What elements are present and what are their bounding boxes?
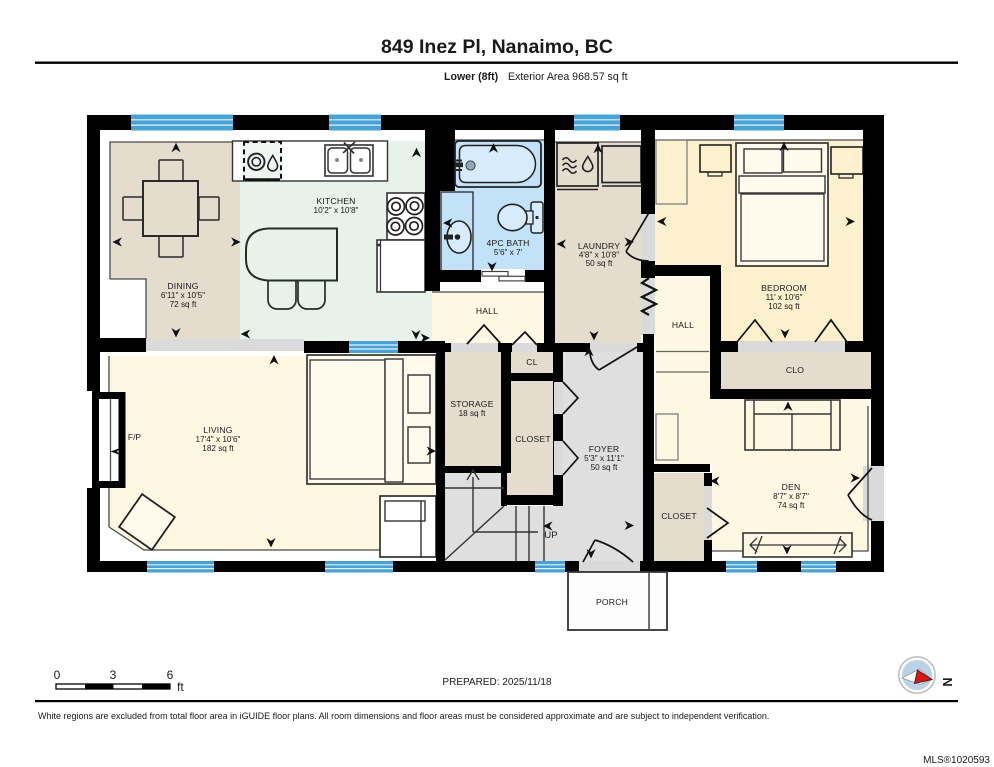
- svg-text:102 sq ft: 102 sq ft: [768, 302, 800, 311]
- svg-text:BEDROOM: BEDROOM: [761, 283, 807, 293]
- svg-text:KITCHEN: KITCHEN: [316, 196, 355, 206]
- svg-text:HALL: HALL: [476, 306, 498, 316]
- svg-text:6: 6: [167, 668, 174, 682]
- svg-text:5'3" x 11'1": 5'3" x 11'1": [584, 454, 624, 463]
- svg-text:ft: ft: [177, 680, 184, 694]
- svg-text:18 sq ft: 18 sq ft: [459, 409, 487, 418]
- svg-text:STORAGE: STORAGE: [450, 399, 493, 409]
- svg-text:FOYER: FOYER: [589, 444, 620, 454]
- svg-text:CLO: CLO: [786, 365, 804, 375]
- svg-text:PORCH: PORCH: [596, 597, 628, 607]
- svg-text:CLOSET: CLOSET: [515, 434, 551, 444]
- svg-text:DEN: DEN: [782, 482, 801, 492]
- svg-text:HALL: HALL: [672, 320, 694, 330]
- svg-text:10'2" x 10'8": 10'2" x 10'8": [314, 206, 359, 215]
- svg-text:UP: UP: [544, 530, 557, 541]
- svg-text:182 sq ft: 182 sq ft: [202, 444, 234, 453]
- svg-text:LIVING: LIVING: [203, 425, 232, 435]
- svg-text:N: N: [940, 677, 954, 686]
- svg-text:6'11" x 10'5": 6'11" x 10'5": [161, 291, 205, 300]
- svg-text:CL: CL: [526, 357, 537, 367]
- svg-text:17'4" x 10'6": 17'4" x 10'6": [196, 435, 241, 444]
- svg-text:White regions are excluded fro: White regions are excluded from total fl…: [38, 711, 769, 721]
- svg-text:72 sq ft: 72 sq ft: [170, 300, 198, 309]
- svg-text:3: 3: [110, 668, 117, 682]
- svg-text:11' x 10'6": 11' x 10'6": [766, 293, 803, 302]
- svg-text:LAUNDRY: LAUNDRY: [578, 241, 620, 251]
- svg-text:4PC BATH: 4PC BATH: [487, 238, 530, 248]
- svg-text:8'7" x 8'7": 8'7" x 8'7": [773, 492, 809, 501]
- svg-text:50 sq ft: 50 sq ft: [586, 259, 614, 268]
- svg-text:PREPARED: 2025/11/18: PREPARED: 2025/11/18: [442, 677, 552, 688]
- svg-text:74 sq ft: 74 sq ft: [778, 501, 806, 510]
- svg-text:0: 0: [54, 668, 61, 682]
- svg-text:CLOSET: CLOSET: [661, 511, 697, 521]
- svg-text:MLS®1020593: MLS®1020593: [923, 755, 990, 766]
- svg-text:5'6" x 7': 5'6" x 7': [494, 248, 523, 257]
- svg-text:Exterior Area 968.57 sq ft: Exterior Area 968.57 sq ft: [508, 71, 628, 83]
- svg-text:849 Inez Pl, Nanaimo, BC: 849 Inez Pl, Nanaimo, BC: [381, 36, 613, 58]
- svg-text:50 sq ft: 50 sq ft: [591, 463, 619, 472]
- svg-text:F/P: F/P: [128, 432, 142, 442]
- svg-text:Lower (8ft): Lower (8ft): [444, 71, 498, 83]
- svg-text:DINING: DINING: [167, 281, 198, 291]
